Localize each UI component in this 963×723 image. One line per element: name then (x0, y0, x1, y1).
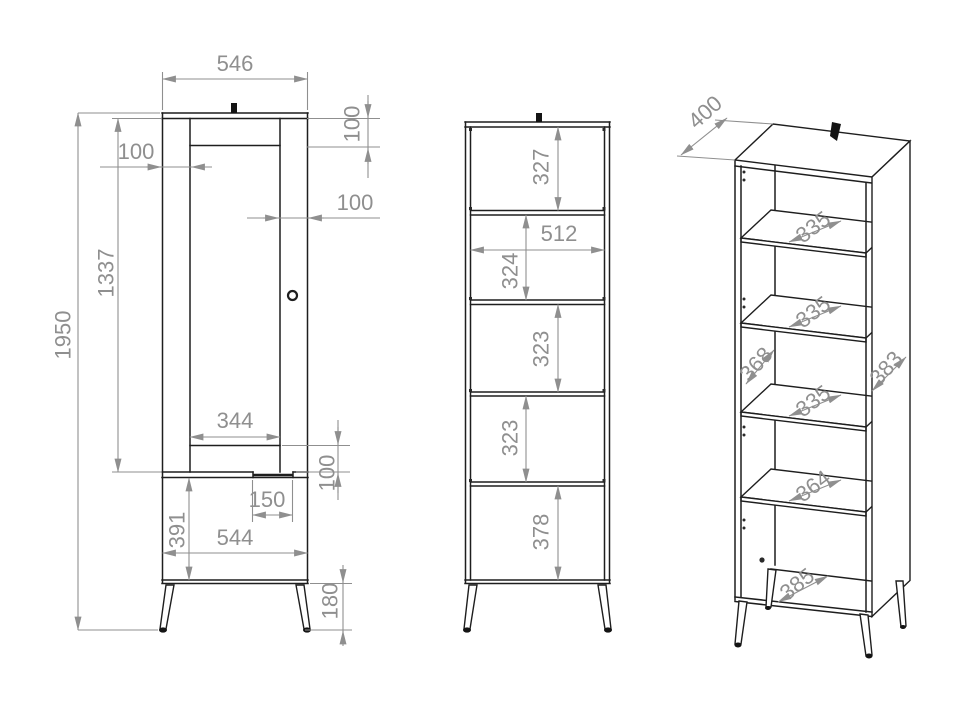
open-view-dimensions: 327 512 324 323 323 378 (471, 127, 605, 580)
dim-leg-height: 180 (318, 583, 343, 620)
front-view-legs (159, 585, 311, 633)
dim-space-2: 324 (498, 253, 523, 290)
technical-drawing-page: 546 1950 1337 100 100 (0, 0, 963, 723)
open-view-legs (463, 585, 612, 633)
dim-bottom-width: 544 (217, 525, 254, 550)
iso-view: 400 335 335 335 368 383 364 385 (677, 90, 910, 658)
dim-bottom-rail: 100 (315, 455, 340, 492)
dim-door-height: 1337 (94, 249, 119, 298)
dim-bottom-depth: 385 (775, 563, 819, 605)
door-knob (288, 291, 297, 300)
dim-total-height: 1950 (51, 311, 76, 360)
open-view: 327 512 324 323 323 378 (463, 113, 612, 633)
front-view-dimensions: 546 1950 1337 100 100 (51, 51, 381, 646)
wall-bracket (231, 103, 237, 113)
cabinet-dimension-drawing: 546 1950 1337 100 100 (0, 0, 963, 723)
open-view-outline (463, 113, 612, 633)
dim-bottom-space: 378 (529, 514, 554, 551)
dim-top-rail: 100 (340, 106, 365, 143)
dim-space-4: 323 (498, 420, 523, 457)
dim-right-stile: 100 (337, 190, 374, 215)
dim-base-height: 391 (165, 512, 190, 549)
dim-inner-width: 512 (541, 221, 578, 246)
front-view: 546 1950 1337 100 100 (51, 51, 381, 646)
wall-bracket (536, 113, 542, 122)
dim-door-inner-width: 344 (217, 408, 254, 433)
dim-left-stile: 100 (118, 139, 155, 164)
dim-top-width: 546 (217, 51, 254, 76)
dim-top-space: 327 (529, 149, 554, 186)
dim-depth: 400 (683, 90, 727, 133)
dim-space-3: 323 (529, 331, 554, 368)
dim-handle-cutout: 150 (249, 487, 286, 512)
